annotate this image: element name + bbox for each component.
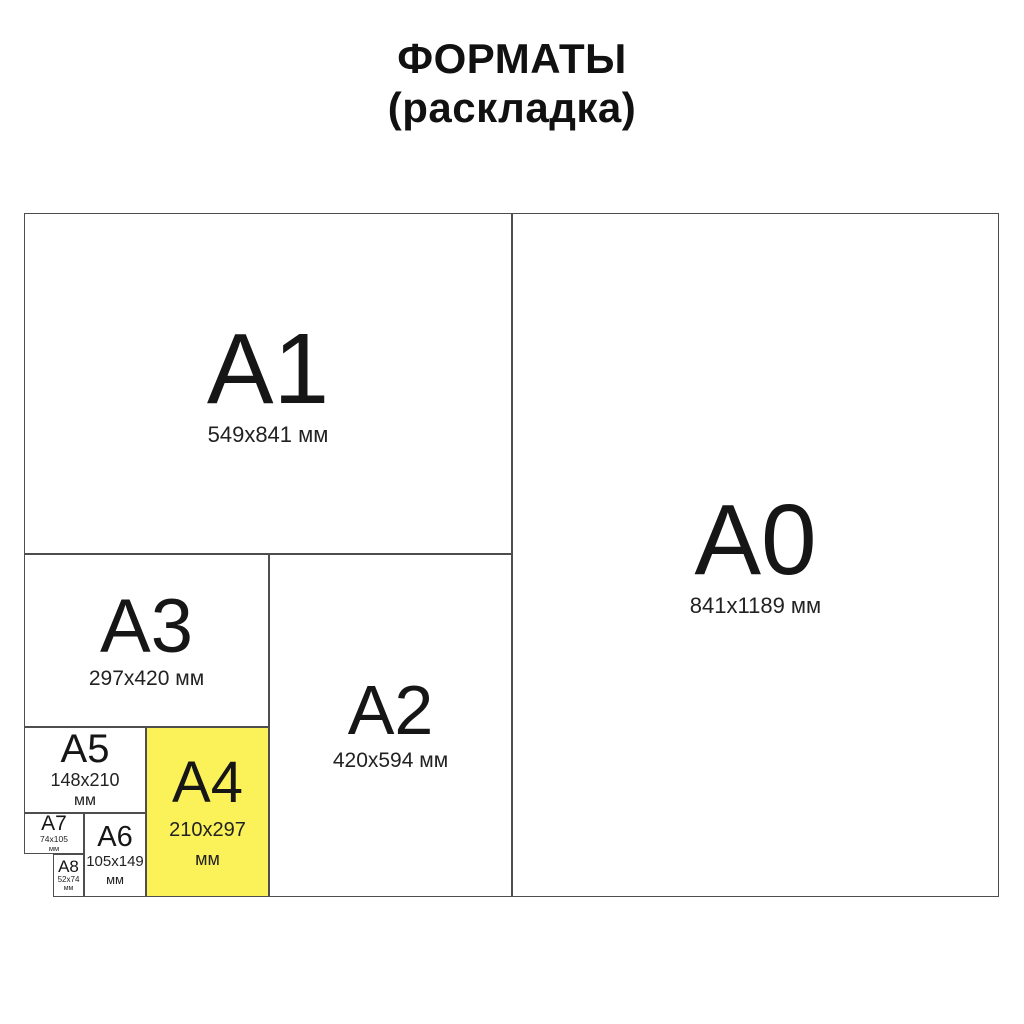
paper-a3: A3 297x420 мм [24,554,269,727]
paper-a7-size: 74x105 [40,834,68,844]
paper-a1-size: 549x841 мм [208,420,329,450]
paper-a6: A6 105x149 мм [84,813,146,897]
paper-a7-label: A7 [41,814,67,834]
paper-a8-label: A8 [58,858,79,875]
page-title: ФОРМАТЫ (раскладка) [0,34,1024,132]
paper-a2: A2 420x594 мм [269,554,512,897]
paper-a3-label: A3 [100,588,193,666]
paper-a5: A5 148x210 мм [24,727,146,813]
paper-a0: A0 841x1189 мм [512,213,999,897]
paper-a0-size: 841x1189 мм [690,591,821,621]
paper-a7: A7 74x105 мм [24,813,84,854]
paper-a4-label: A4 [172,753,243,812]
paper-a8-unit: мм [64,884,74,893]
paper-a6-unit: мм [106,871,124,888]
paper-a7-unit: мм [49,844,59,853]
paper-a4-size: 210x297 [169,817,246,844]
paper-a6-label: A6 [97,822,132,852]
page-title-line1: ФОРМАТЫ [0,34,1024,83]
paper-a1: A1 549x841 мм [24,213,512,554]
paper-a3-size: 297x420 мм [89,665,204,693]
paper-a5-label: A5 [61,729,110,770]
paper-a6-size: 105x149 [86,852,144,871]
paper-a4-unit: мм [195,847,220,871]
paper-a5-unit: мм [74,791,96,811]
paper-a8-size: 52x74 [58,875,80,884]
paper-a5-size: 148x210 [50,769,119,791]
page: ФОРМАТЫ (раскладка) A1 549x841 мм A0 841… [0,0,1024,1024]
paper-a0-label: A0 [694,489,816,591]
paper-a2-label: A2 [348,675,434,746]
page-title-line2: (раскладка) [0,83,1024,132]
paper-a2-size: 420x594 мм [333,746,448,776]
paper-a4-highlighted: A4 210x297 мм [146,727,269,897]
paper-a8: A8 52x74 мм [53,854,84,897]
paper-a1-label: A1 [207,318,329,420]
